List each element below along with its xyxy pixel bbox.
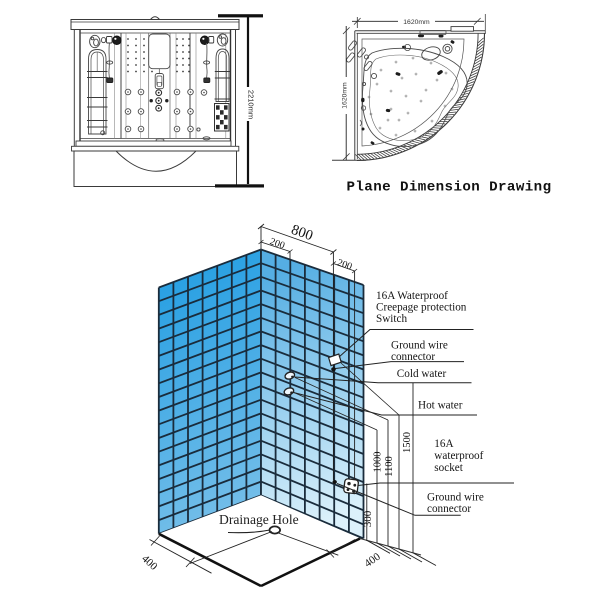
svg-text:1500: 1500 [402,432,413,453]
svg-text:Plane Dimension Drawing: Plane Dimension Drawing [346,180,551,196]
svg-text:Ground wire: Ground wire [391,340,448,352]
svg-text:Drainage Hole: Drainage Hole [219,512,299,527]
svg-text:16A: 16A [434,438,453,450]
svg-text:300: 300 [362,510,374,527]
svg-text:16A Waterproof: 16A Waterproof [376,290,448,302]
svg-text:1000: 1000 [373,452,384,473]
svg-text:Switch: Switch [376,313,407,325]
svg-text:connector: connector [427,503,471,515]
svg-text:Hot water: Hot water [418,400,463,412]
svg-text:Cold water: Cold water [397,368,447,380]
svg-text:socket: socket [434,462,463,474]
svg-text:2210mm: 2210mm [247,90,256,119]
svg-text:waterproof: waterproof [434,450,483,462]
svg-text:connector: connector [391,351,435,363]
svg-text:1100: 1100 [384,456,395,477]
svg-text:Ground wire: Ground wire [427,492,484,504]
svg-text:Creepage protection: Creepage protection [376,302,467,314]
svg-text:1620mm: 1620mm [403,19,430,26]
svg-text:1620mm: 1620mm [342,82,349,109]
